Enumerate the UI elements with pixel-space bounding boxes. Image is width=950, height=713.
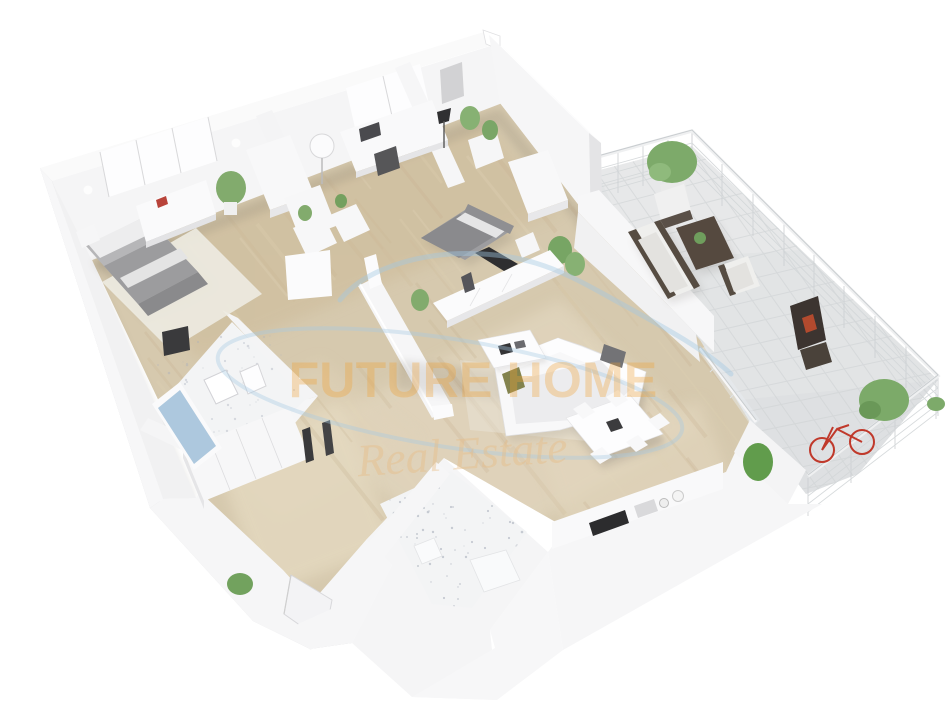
- svg-text:FUTURE HOME: FUTURE HOME: [289, 352, 658, 408]
